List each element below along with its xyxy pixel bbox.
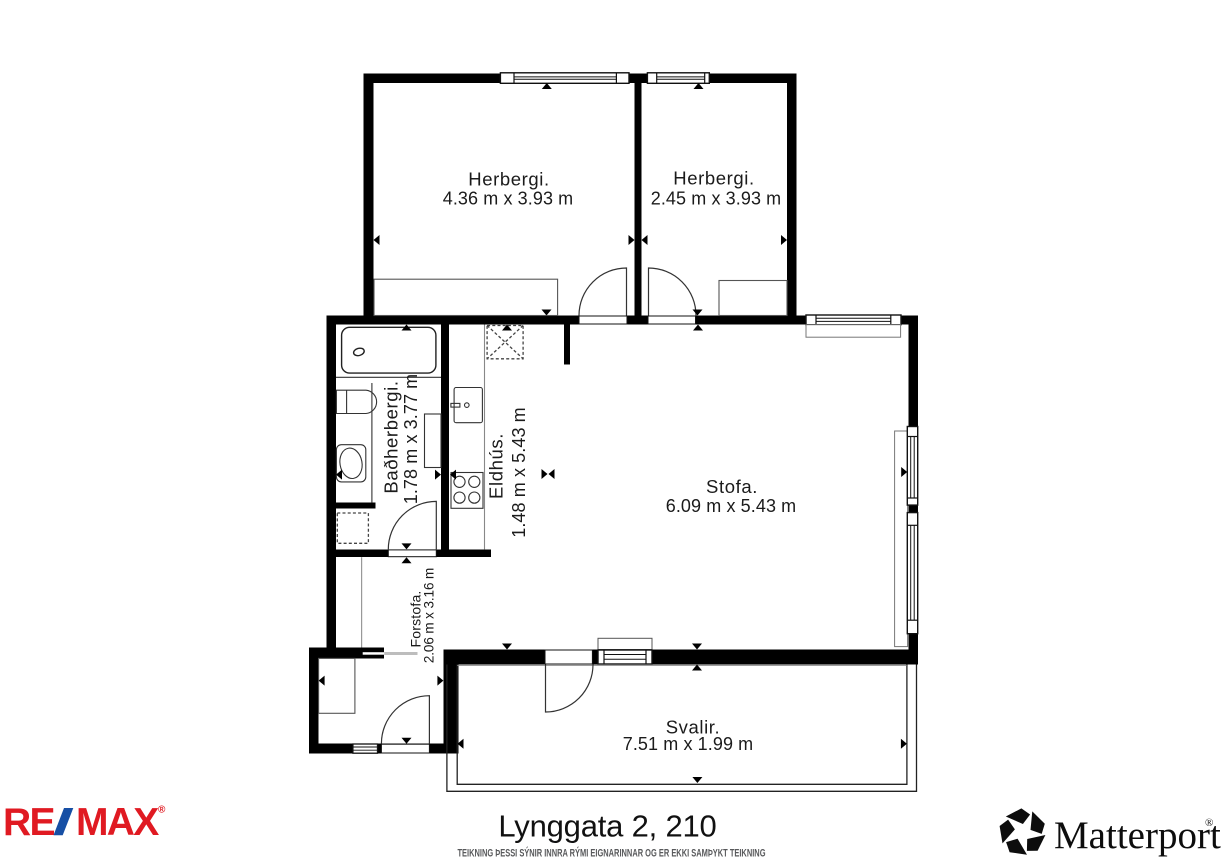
svg-text:Eldhús.: Eldhús. [486,433,507,499]
svg-text:2.06 m x 3.16 m: 2.06 m x 3.16 m [422,568,437,663]
svg-text:®: ® [158,805,166,816]
svg-text:1.48 m x 5.43 m: 1.48 m x 5.43 m [509,407,529,538]
svg-text:1.78 m x 3.77 m: 1.78 m x 3.77 m [401,374,421,505]
svg-text:4.36 m x 3.93 m: 4.36 m x 3.93 m [443,189,574,209]
svg-text:Matterport: Matterport [1054,814,1221,857]
svg-text:®: ® [1205,817,1213,829]
svg-text:MAX: MAX [76,801,159,844]
svg-text:Baðherbergi.: Baðherbergi. [381,380,402,493]
svg-text:RE: RE [3,801,54,844]
svg-text:2.45 m x 3.93 m: 2.45 m x 3.93 m [651,189,782,209]
svg-text:Lynggata 2, 210: Lynggata 2, 210 [498,808,716,843]
svg-text:Herbergi.: Herbergi. [673,168,755,189]
svg-text:7.51 m x 1.99 m: 7.51 m x 1.99 m [623,734,754,754]
svg-text:Stofa.: Stofa. [706,476,758,497]
svg-text:TEIKNING ÞESSI SÝNIR INNRA RÝM: TEIKNING ÞESSI SÝNIR INNRA RÝMI EIGNARIN… [457,846,765,859]
svg-text:Herbergi.: Herbergi. [468,169,550,190]
svg-text:6.09 m x 5.43 m: 6.09 m x 5.43 m [666,496,797,516]
